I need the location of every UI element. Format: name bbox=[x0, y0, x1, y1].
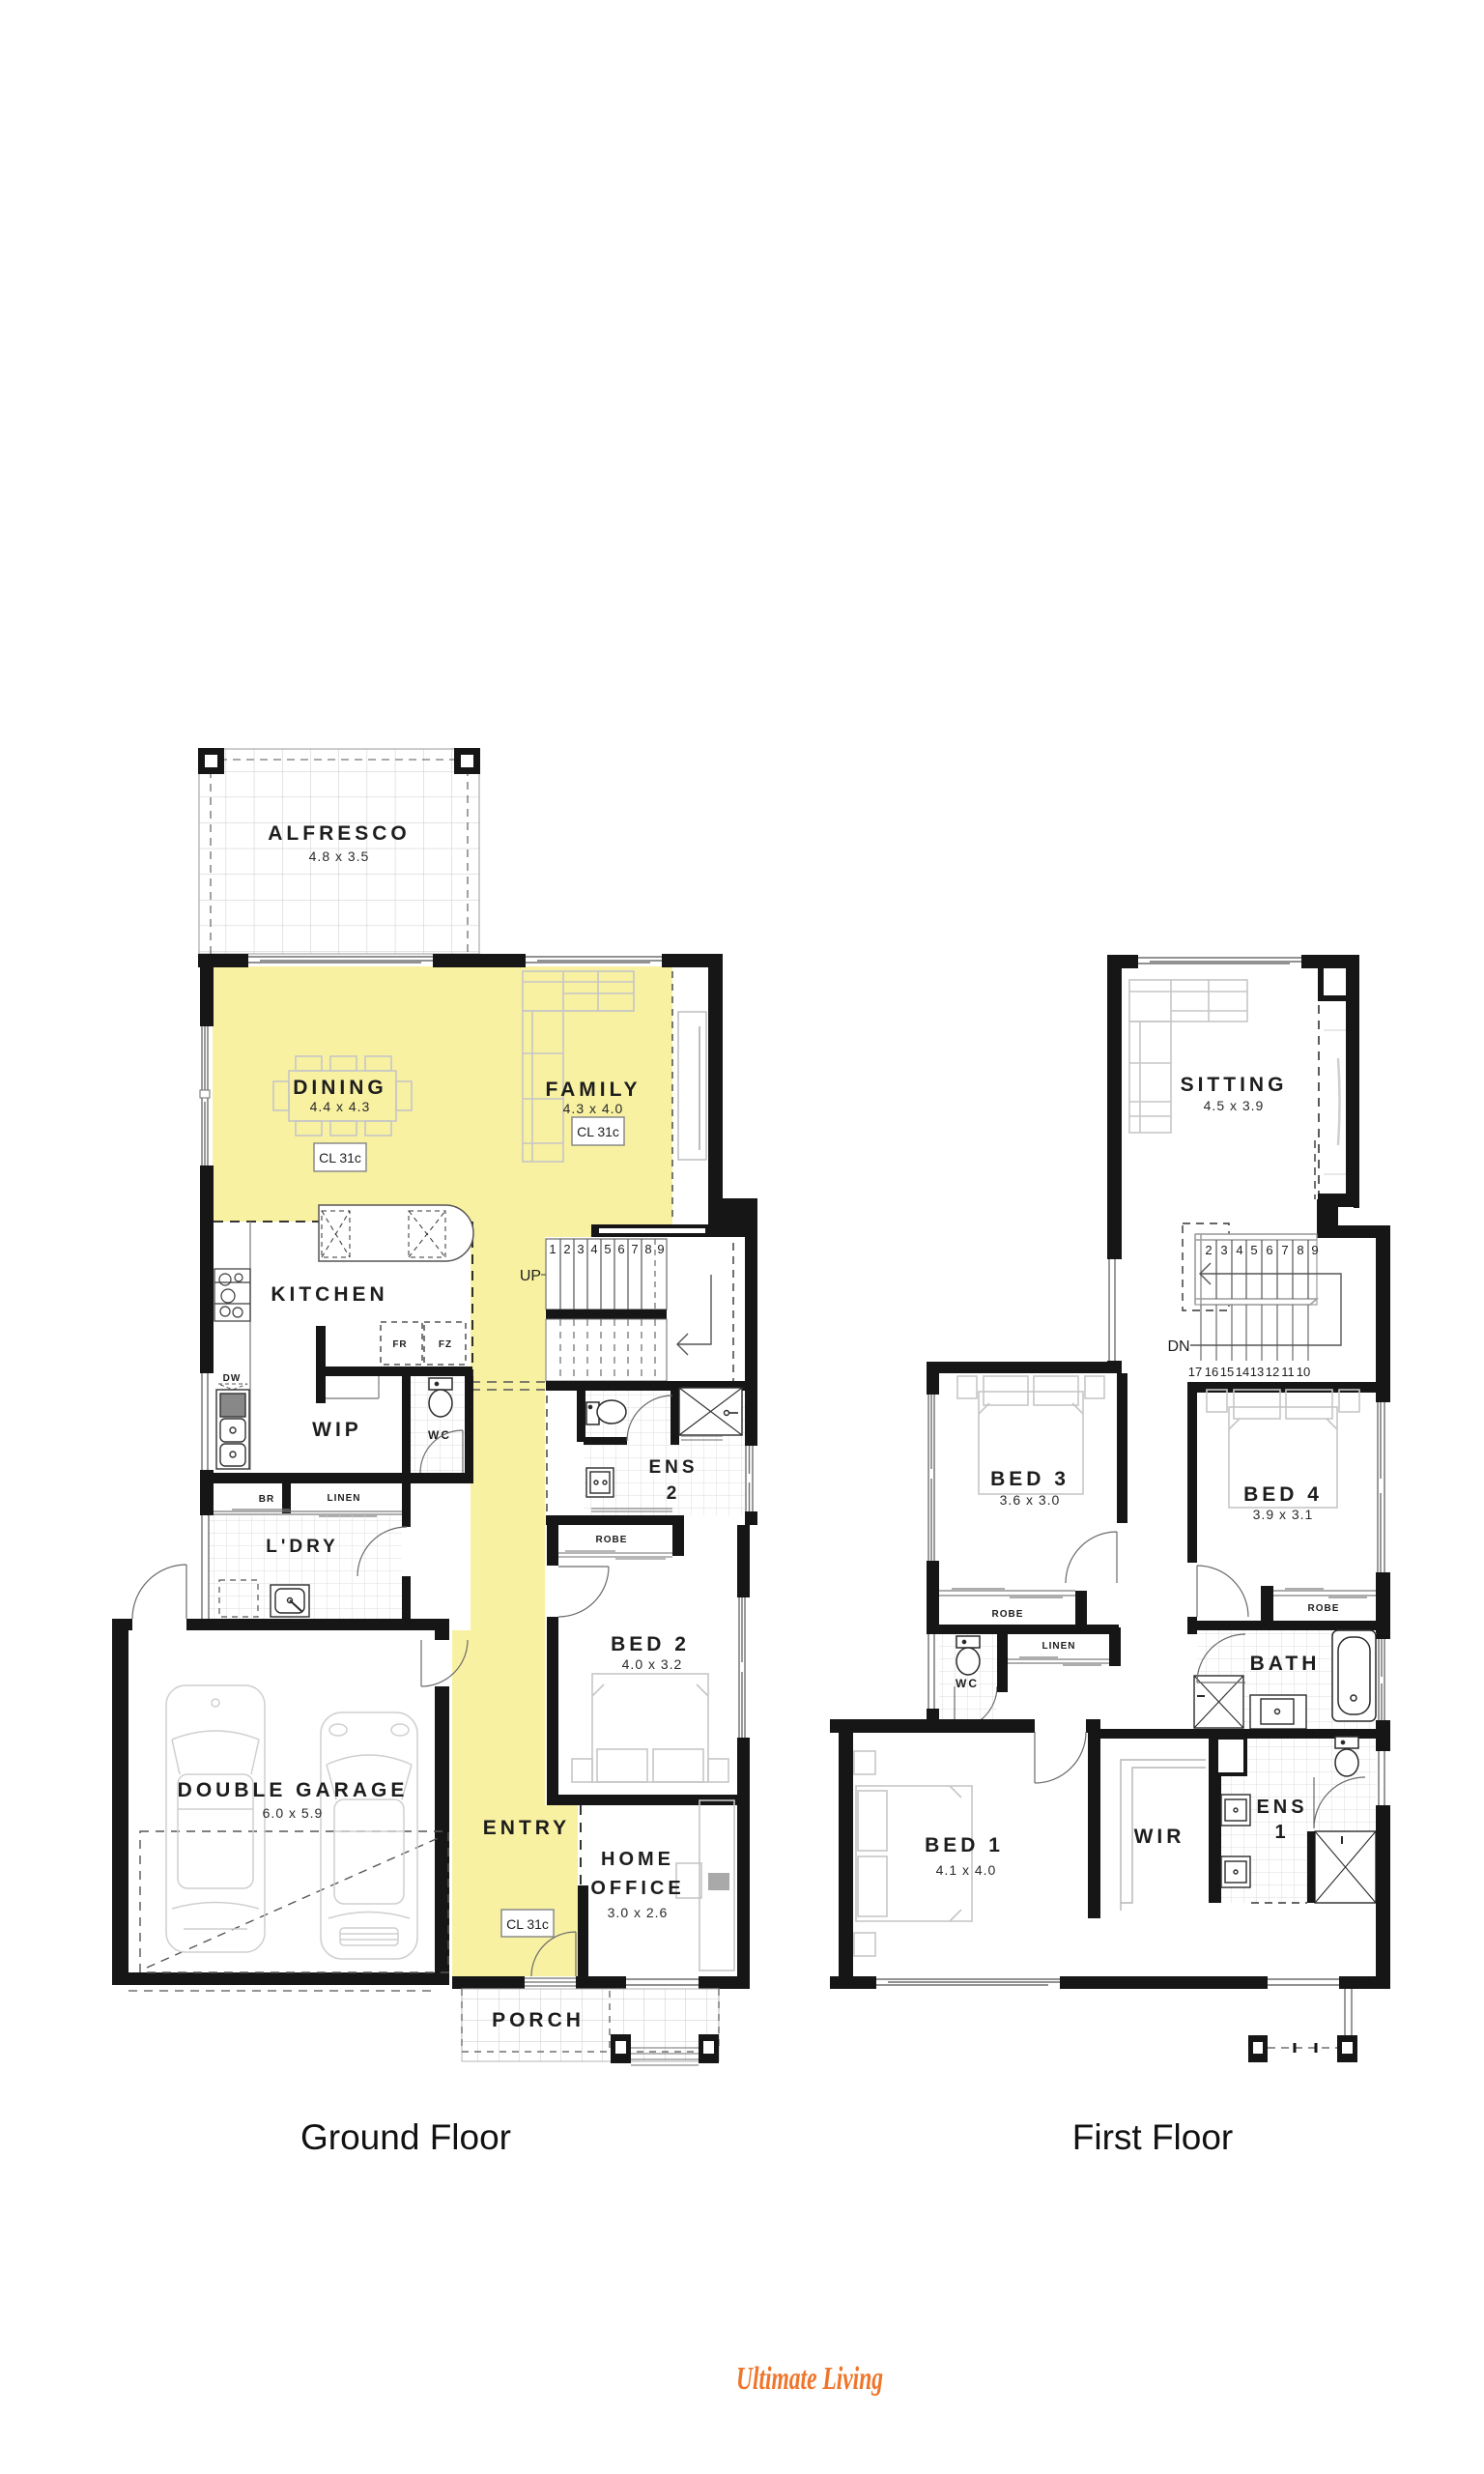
svg-text:8: 8 bbox=[644, 1242, 651, 1256]
svg-text:ENTRY: ENTRY bbox=[483, 1817, 570, 1839]
svg-text:3: 3 bbox=[577, 1242, 584, 1256]
svg-text:3: 3 bbox=[1220, 1243, 1227, 1257]
svg-text:3.6 x 3.0: 3.6 x 3.0 bbox=[1000, 1492, 1061, 1508]
svg-text:16: 16 bbox=[1205, 1365, 1218, 1379]
svg-text:11: 11 bbox=[1281, 1365, 1295, 1379]
svg-text:ROBE: ROBE bbox=[596, 1535, 628, 1545]
svg-text:15: 15 bbox=[1220, 1365, 1234, 1379]
svg-text:4.0 x 3.2: 4.0 x 3.2 bbox=[622, 1656, 683, 1672]
svg-text:WIR: WIR bbox=[1134, 1826, 1185, 1848]
svg-text:HOME: HOME bbox=[601, 1849, 674, 1870]
svg-text:BED 1: BED 1 bbox=[925, 1834, 1004, 1856]
svg-text:13: 13 bbox=[1250, 1365, 1264, 1379]
svg-text:4: 4 bbox=[590, 1242, 597, 1256]
svg-text:FZ: FZ bbox=[439, 1339, 452, 1350]
svg-text:5: 5 bbox=[1250, 1243, 1257, 1257]
svg-text:UP: UP bbox=[520, 1268, 541, 1284]
svg-text:4.4 x 4.3: 4.4 x 4.3 bbox=[310, 1099, 371, 1114]
svg-text:ENS: ENS bbox=[648, 1457, 698, 1478]
svg-text:Ultimate Living: Ultimate Living bbox=[736, 2361, 883, 2397]
svg-text:4.8 x 3.5: 4.8 x 3.5 bbox=[309, 849, 370, 864]
svg-text:9: 9 bbox=[657, 1242, 664, 1256]
svg-text:FR: FR bbox=[392, 1339, 407, 1350]
svg-text:LINEN: LINEN bbox=[328, 1493, 361, 1504]
svg-text:DN: DN bbox=[1167, 1338, 1189, 1355]
svg-text:ROBE: ROBE bbox=[1308, 1603, 1340, 1614]
svg-text:L'DRY: L'DRY bbox=[266, 1537, 339, 1557]
svg-text:WC: WC bbox=[956, 1677, 979, 1690]
svg-text:ENS: ENS bbox=[1256, 1797, 1307, 1818]
svg-text:CL 31c: CL 31c bbox=[319, 1150, 361, 1165]
svg-text:PORCH: PORCH bbox=[492, 2009, 585, 2031]
svg-text:6: 6 bbox=[617, 1242, 624, 1256]
svg-text:ALFRESCO: ALFRESCO bbox=[268, 822, 411, 845]
svg-text:WC: WC bbox=[428, 1428, 451, 1442]
svg-text:2: 2 bbox=[563, 1242, 570, 1256]
svg-text:1: 1 bbox=[1274, 1822, 1289, 1843]
svg-text:1: 1 bbox=[549, 1242, 556, 1256]
svg-text:4.3 x 4.0: 4.3 x 4.0 bbox=[563, 1101, 624, 1116]
svg-text:CL 31c: CL 31c bbox=[577, 1124, 619, 1139]
svg-text:3.0 x 2.6: 3.0 x 2.6 bbox=[608, 1905, 669, 1920]
svg-text:CL 31c: CL 31c bbox=[506, 1916, 549, 1932]
svg-text:4: 4 bbox=[1236, 1243, 1242, 1257]
svg-text:DW: DW bbox=[223, 1373, 242, 1384]
svg-text:2: 2 bbox=[667, 1483, 681, 1504]
svg-text:LINEN: LINEN bbox=[1042, 1641, 1076, 1652]
svg-text:DOUBLE GARAGE: DOUBLE GARAGE bbox=[178, 1779, 409, 1801]
svg-text:BED 4: BED 4 bbox=[1243, 1483, 1323, 1506]
svg-text:9: 9 bbox=[1311, 1243, 1318, 1257]
svg-text:OFFICE: OFFICE bbox=[590, 1878, 684, 1899]
svg-text:2: 2 bbox=[1205, 1243, 1212, 1257]
svg-text:14: 14 bbox=[1236, 1365, 1249, 1379]
svg-text:5: 5 bbox=[604, 1242, 611, 1256]
svg-text:KITCHEN: KITCHEN bbox=[271, 1283, 387, 1306]
svg-text:SITTING: SITTING bbox=[1181, 1074, 1288, 1096]
svg-text:4.5 x 3.9: 4.5 x 3.9 bbox=[1204, 1098, 1265, 1113]
svg-text:BR: BR bbox=[259, 1494, 274, 1505]
svg-text:First Floor: First Floor bbox=[1072, 2117, 1234, 2157]
svg-text:WIP: WIP bbox=[312, 1419, 362, 1441]
svg-text:10: 10 bbox=[1297, 1365, 1310, 1379]
svg-text:BED 3: BED 3 bbox=[990, 1468, 1070, 1490]
svg-text:12: 12 bbox=[1266, 1365, 1279, 1379]
svg-text:4.1 x 4.0: 4.1 x 4.0 bbox=[936, 1862, 997, 1878]
svg-text:7: 7 bbox=[1281, 1243, 1288, 1257]
svg-text:BATH: BATH bbox=[1250, 1653, 1321, 1675]
svg-text:7: 7 bbox=[631, 1242, 638, 1256]
svg-text:Ground Floor: Ground Floor bbox=[300, 2117, 511, 2157]
svg-text:ROBE: ROBE bbox=[992, 1609, 1024, 1620]
svg-text:6: 6 bbox=[1266, 1243, 1272, 1257]
svg-text:6.0 x 5.9: 6.0 x 5.9 bbox=[263, 1805, 324, 1821]
svg-text:3.9 x 3.1: 3.9 x 3.1 bbox=[1253, 1507, 1314, 1522]
svg-text:BED 2: BED 2 bbox=[611, 1633, 690, 1655]
svg-text:FAMILY: FAMILY bbox=[545, 1079, 641, 1101]
svg-text:8: 8 bbox=[1297, 1243, 1303, 1257]
svg-text:17: 17 bbox=[1188, 1365, 1202, 1379]
svg-text:DINING: DINING bbox=[293, 1077, 387, 1099]
